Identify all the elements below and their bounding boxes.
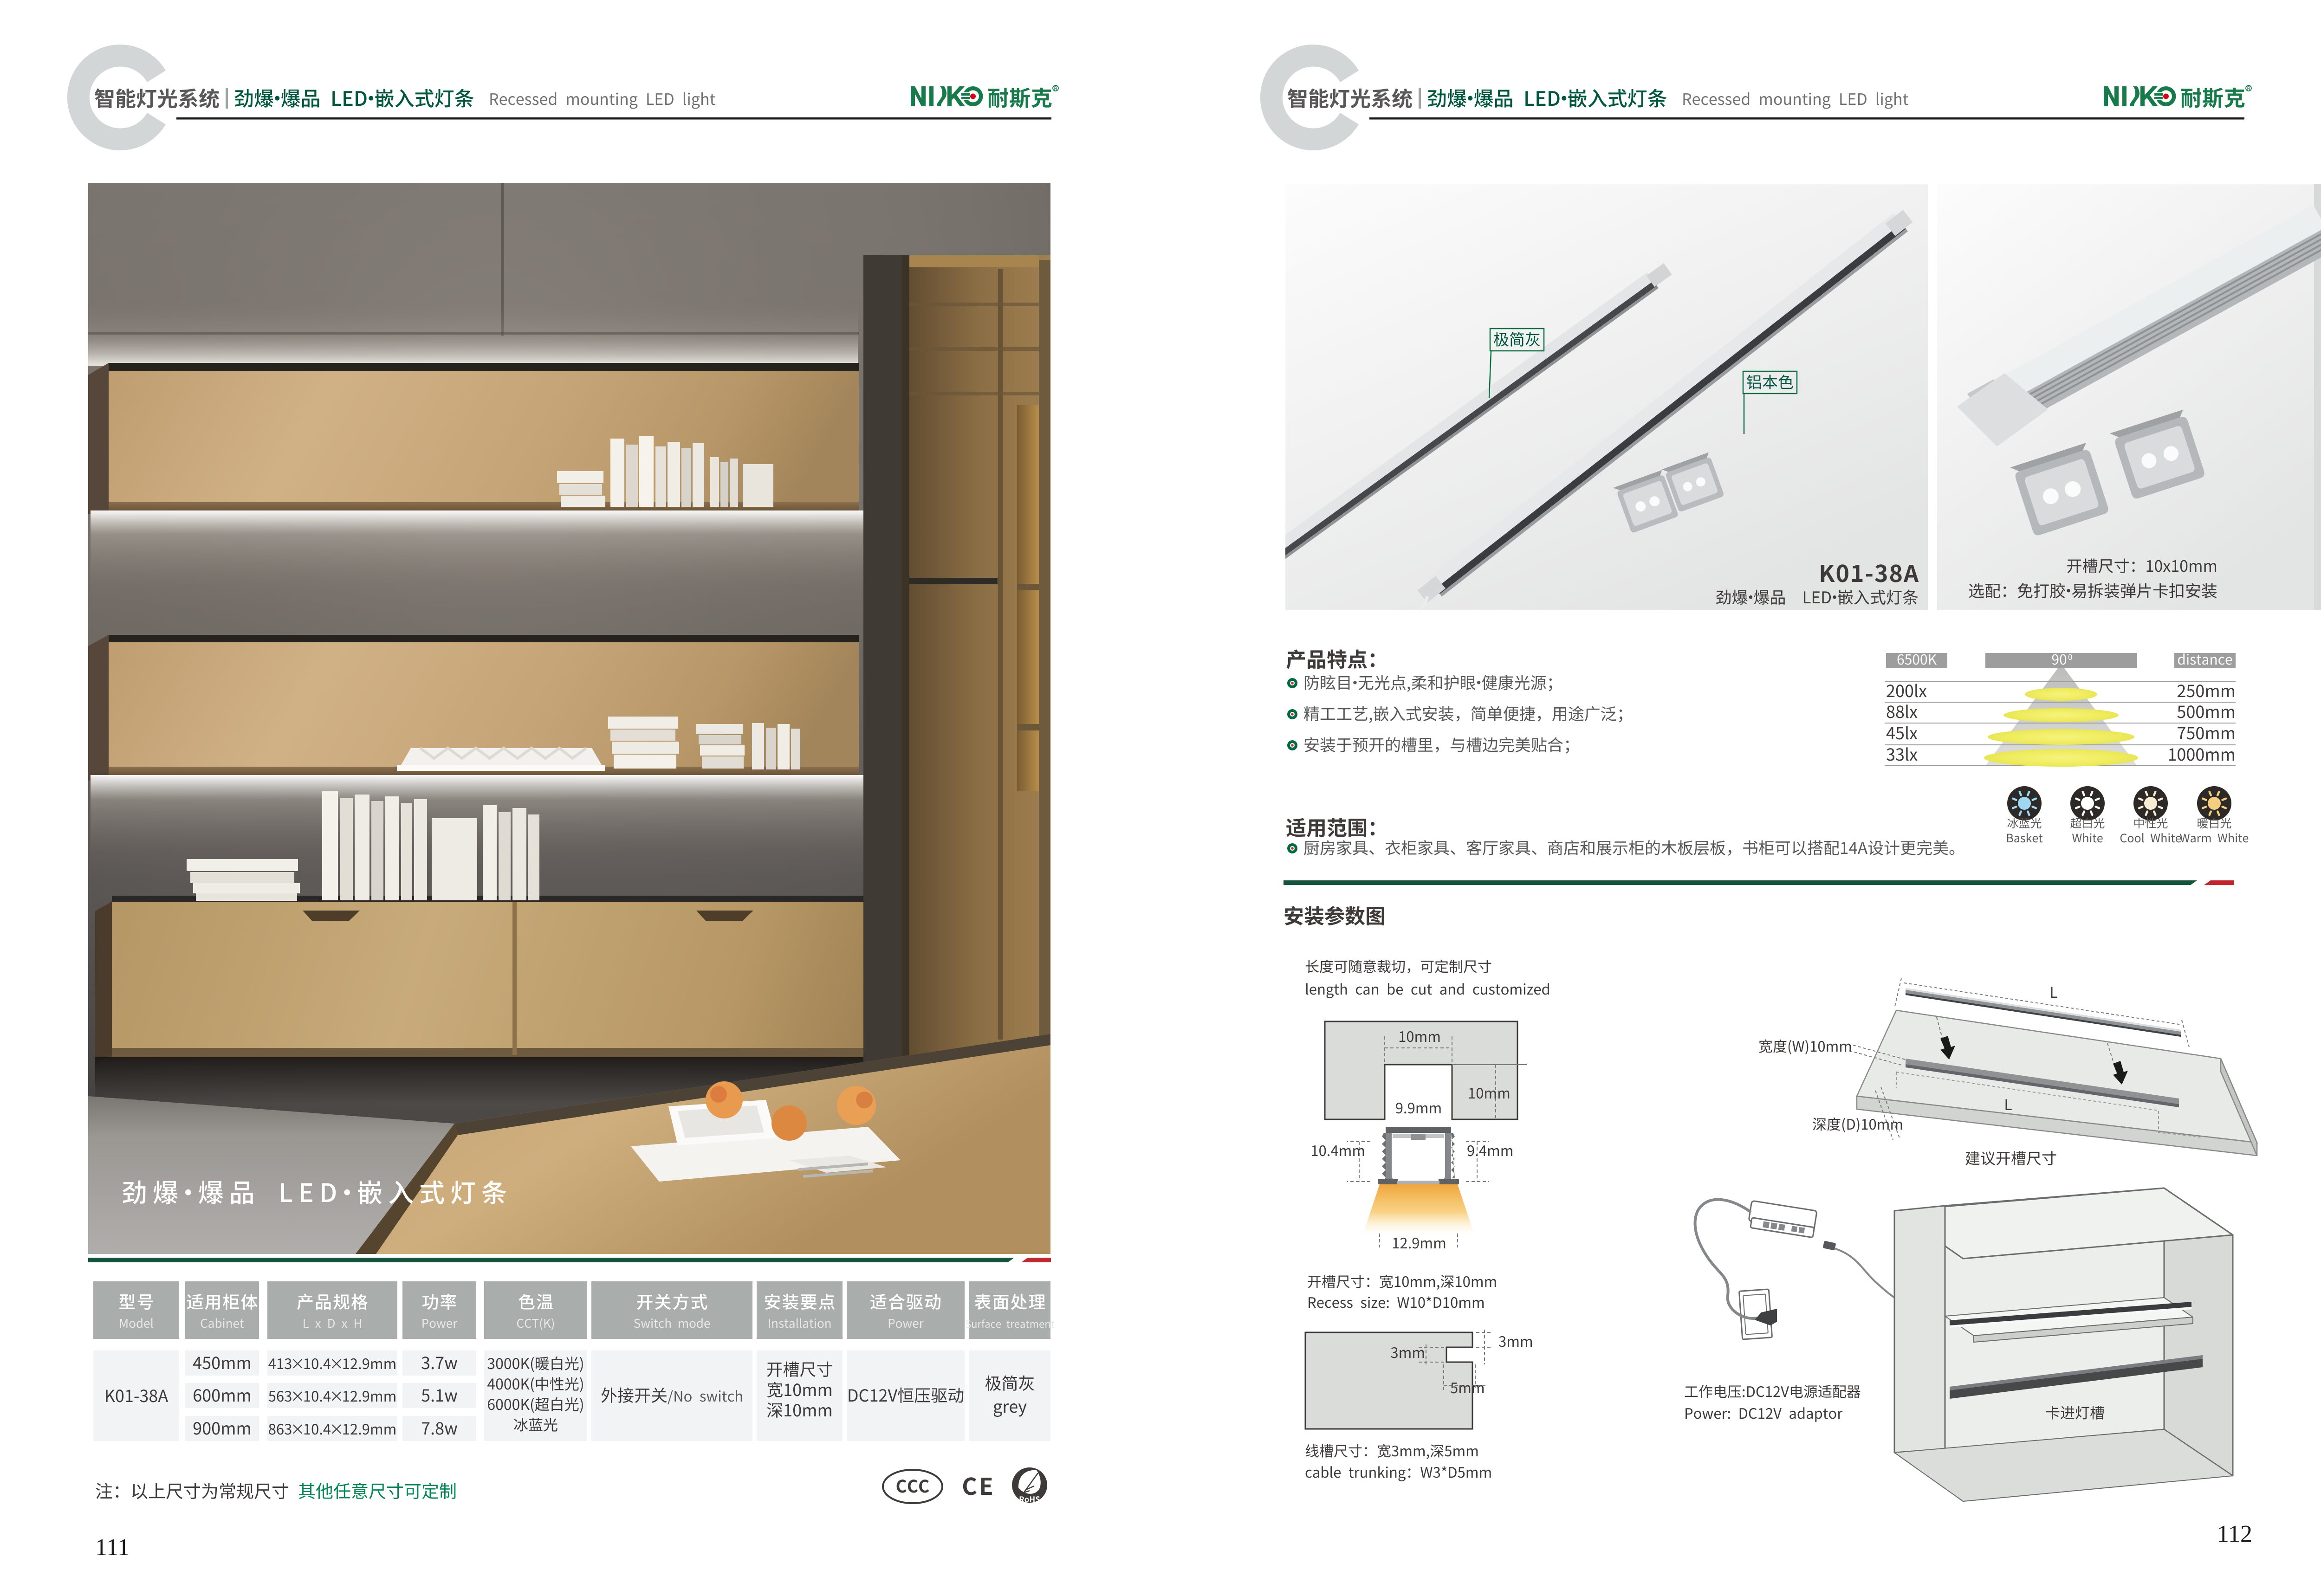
svg-text:112: 112 xyxy=(2217,1521,2252,1547)
svg-text:111: 111 xyxy=(95,1534,130,1561)
